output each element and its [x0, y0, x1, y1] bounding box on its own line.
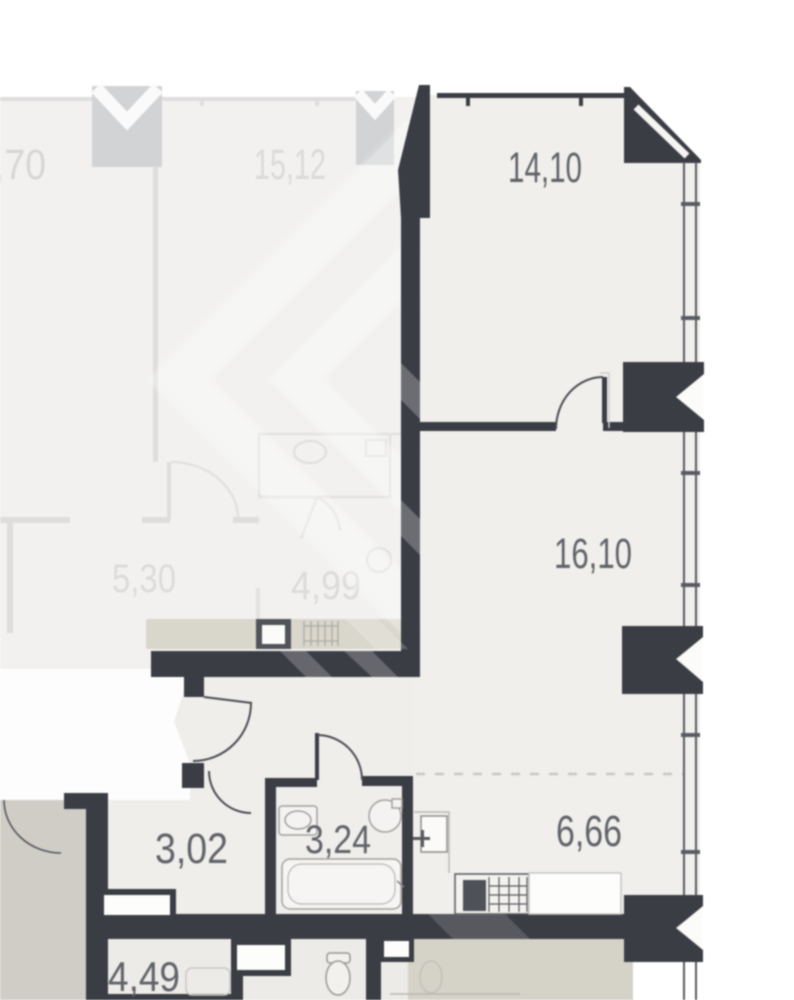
- svg-text:5,30: 5,30: [112, 557, 176, 601]
- svg-text:4,49: 4,49: [108, 953, 180, 1000]
- svg-text:,70: ,70: [0, 141, 46, 189]
- svg-text:15,12: 15,12: [254, 141, 326, 189]
- svg-text:16,10: 16,10: [554, 530, 632, 578]
- svg-text:3,02: 3,02: [155, 825, 228, 873]
- svg-text:6,66: 6,66: [556, 807, 622, 856]
- svg-text:3,24: 3,24: [305, 818, 371, 862]
- svg-text:14,10: 14,10: [508, 144, 582, 192]
